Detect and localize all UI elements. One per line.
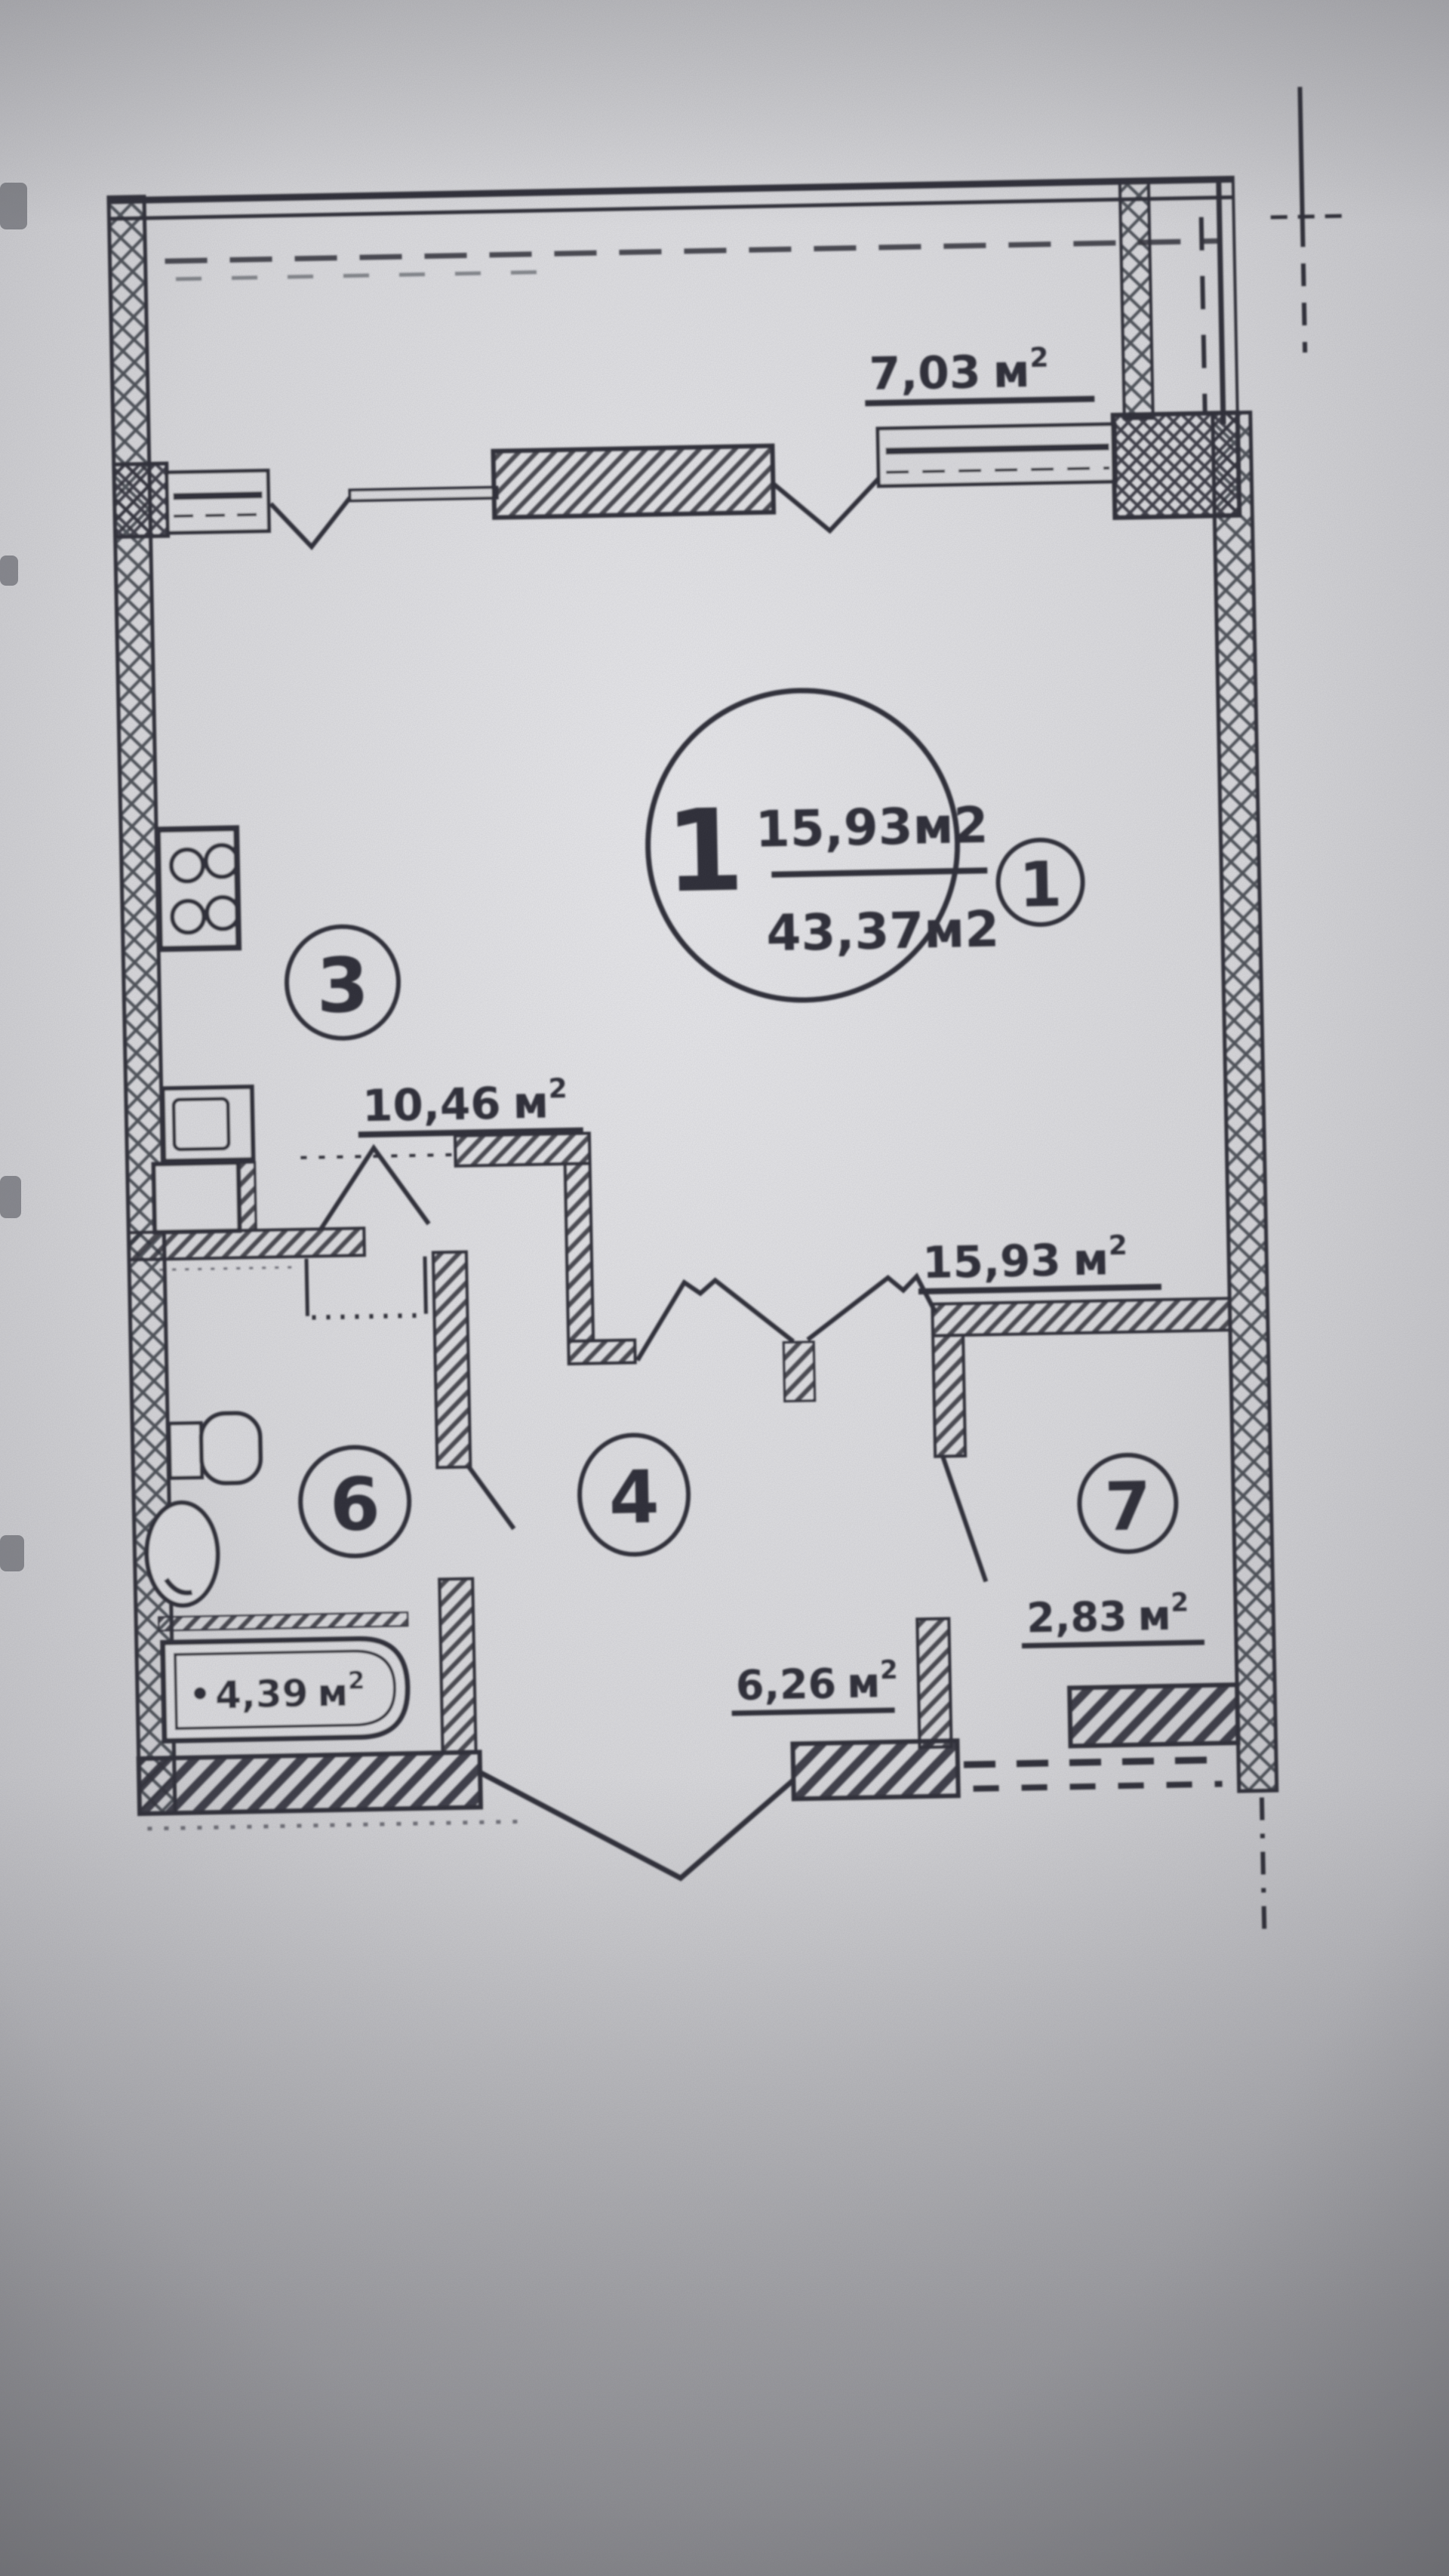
floor-plan-photo: 1 15,93м2 43,37м2 3 1 6 4 7 7,03м2 [0,0,1449,2576]
paper-grain [0,0,1449,2576]
